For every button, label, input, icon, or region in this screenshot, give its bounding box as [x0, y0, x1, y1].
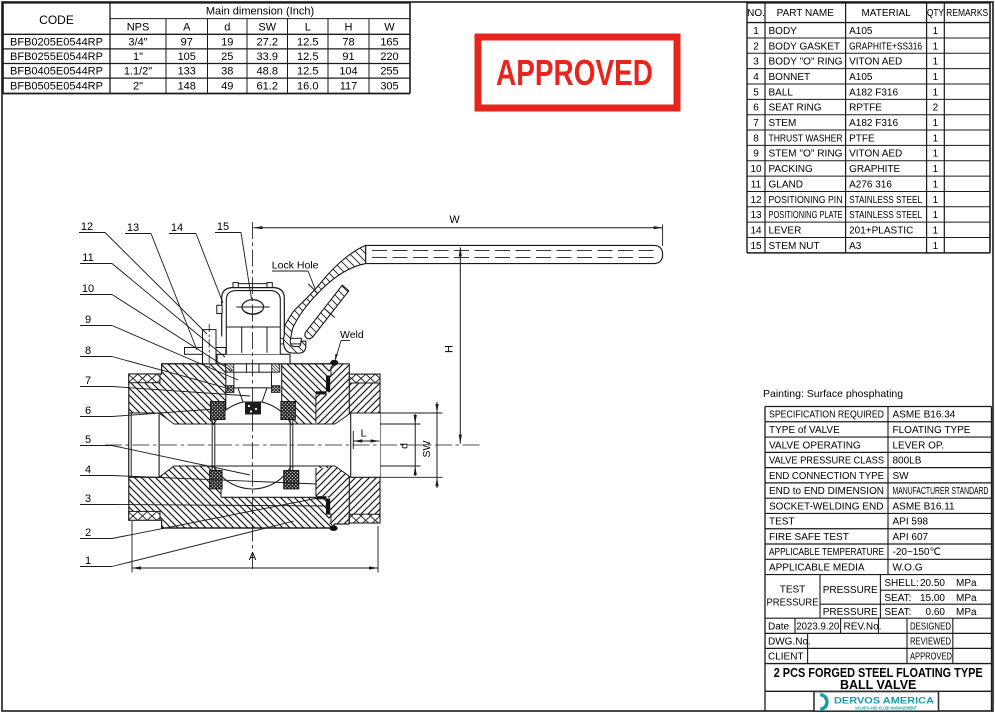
- svg-text:Lock Hole: Lock Hole: [272, 260, 319, 272]
- svg-text:BODY GASKET: BODY GASKET: [769, 41, 841, 52]
- svg-text:BFB0205E0544RP: BFB0205E0544RP: [10, 37, 103, 49]
- svg-text:3: 3: [753, 57, 759, 68]
- svg-text:12: 12: [750, 195, 762, 206]
- svg-text:GRAPHITE+SS316: GRAPHITE+SS316: [849, 41, 922, 52]
- svg-text:1: 1: [933, 225, 939, 236]
- svg-text:ASME B16.11: ASME B16.11: [893, 501, 956, 512]
- svg-text:1: 1: [933, 133, 939, 144]
- svg-text:10: 10: [82, 283, 94, 295]
- svg-text:MPa: MPa: [956, 578, 977, 589]
- svg-text:VALVE PRESSURE CLASS: VALVE PRESSURE CLASS: [769, 456, 884, 467]
- svg-text:1: 1: [753, 26, 759, 37]
- svg-text:13: 13: [750, 210, 762, 221]
- svg-text:9: 9: [753, 149, 759, 160]
- svg-text:A: A: [249, 551, 257, 563]
- svg-text:A105: A105: [849, 72, 873, 83]
- svg-text:117: 117: [340, 80, 358, 92]
- svg-text:APPROVED: APPROVED: [910, 652, 952, 663]
- svg-text:7: 7: [753, 118, 759, 129]
- svg-text:14: 14: [750, 225, 762, 236]
- svg-text:PRESSURE: PRESSURE: [767, 598, 819, 609]
- svg-text:12.5: 12.5: [297, 66, 318, 78]
- svg-text:8: 8: [753, 133, 759, 144]
- svg-text:11: 11: [82, 252, 93, 264]
- svg-text:5: 5: [85, 434, 91, 446]
- svg-text:1: 1: [933, 87, 939, 98]
- svg-text:FLOATING TYPE: FLOATING TYPE: [893, 425, 971, 436]
- svg-text:19: 19: [221, 37, 233, 49]
- svg-text:6: 6: [85, 405, 91, 417]
- svg-text:STEM NUT: STEM NUT: [769, 241, 820, 252]
- svg-text:d: d: [399, 443, 411, 449]
- svg-text:REMARKS: REMARKS: [946, 8, 988, 19]
- svg-text:PRESSURE: PRESSURE: [823, 607, 878, 618]
- svg-text:ASME B16.34: ASME B16.34: [893, 410, 956, 421]
- svg-text:14: 14: [171, 222, 183, 234]
- svg-text:78: 78: [342, 37, 354, 49]
- svg-text:3/4": 3/4": [128, 37, 147, 49]
- svg-text:VALVE OPERATING: VALVE OPERATING: [769, 440, 861, 451]
- svg-text:7: 7: [85, 375, 91, 387]
- svg-text:12: 12: [81, 221, 93, 233]
- svg-text:1: 1: [933, 149, 939, 160]
- svg-text:1: 1: [933, 26, 939, 37]
- svg-text:20.50: 20.50: [920, 578, 945, 589]
- svg-text:TYPE of VALVE: TYPE of VALVE: [769, 425, 840, 436]
- svg-text:1: 1: [933, 210, 939, 221]
- svg-text:REV.No.: REV.No.: [844, 621, 882, 632]
- svg-text:2: 2: [933, 103, 939, 114]
- svg-text:PACKING: PACKING: [769, 164, 813, 175]
- svg-text:W.O.G: W.O.G: [893, 563, 923, 574]
- svg-text:H: H: [444, 345, 456, 353]
- svg-text:2023.9.20: 2023.9.20: [796, 621, 839, 632]
- svg-text:A182 F316: A182 F316: [849, 87, 898, 98]
- svg-text:API 607: API 607: [893, 532, 929, 543]
- svg-text:27.2: 27.2: [257, 37, 278, 49]
- svg-text:GRAPHITE: GRAPHITE: [849, 164, 900, 175]
- svg-text:BONNET: BONNET: [769, 72, 811, 83]
- svg-text:PRESSURE: PRESSURE: [823, 585, 878, 596]
- svg-text:VALVES AND FLUID MANAGEMENT: VALVES AND FLUID MANAGEMENT: [855, 705, 917, 710]
- svg-text:API 598: API 598: [893, 517, 929, 528]
- svg-text:1.1/2": 1.1/2": [124, 66, 152, 78]
- svg-text:POSITIONING PLATE: POSITIONING PLATE: [769, 210, 843, 221]
- svg-text:PART NAME: PART NAME: [777, 8, 835, 19]
- svg-text:SEAT:: SEAT:: [884, 607, 911, 618]
- svg-text:d: d: [224, 22, 230, 34]
- svg-text:5: 5: [753, 87, 759, 98]
- svg-text:CODE: CODE: [39, 13, 74, 27]
- svg-text:-20~150℃: -20~150℃: [893, 547, 941, 558]
- svg-text:1: 1: [933, 241, 939, 252]
- svg-text:16.0: 16.0: [297, 80, 318, 92]
- svg-text:12.5: 12.5: [297, 51, 318, 63]
- svg-text:END to END DIMENSION: END to END DIMENSION: [769, 486, 884, 497]
- svg-text:105: 105: [178, 51, 196, 63]
- svg-text:SPECIFICATION REQUIRED: SPECIFICATION REQUIRED: [769, 410, 884, 421]
- svg-text:NO.: NO.: [747, 8, 765, 19]
- svg-text:MPa: MPa: [956, 607, 977, 618]
- svg-text:97: 97: [181, 37, 193, 49]
- svg-text:4: 4: [753, 72, 759, 83]
- svg-text:Date: Date: [768, 621, 790, 632]
- svg-text:L: L: [305, 22, 311, 34]
- svg-text:SOCKET-WELDING END: SOCKET-WELDING END: [769, 501, 883, 512]
- svg-text:BFB0405E0544RP: BFB0405E0544RP: [10, 66, 103, 78]
- svg-text:DESIGNED: DESIGNED: [910, 621, 951, 632]
- svg-text:1": 1": [133, 51, 143, 63]
- svg-text:1: 1: [933, 164, 939, 175]
- svg-text:SW: SW: [893, 471, 910, 482]
- svg-text:1: 1: [933, 41, 939, 52]
- svg-text:CLIENT: CLIENT: [768, 652, 804, 663]
- svg-text:11: 11: [751, 179, 762, 190]
- svg-text:H: H: [345, 22, 353, 34]
- svg-text:TEST: TEST: [780, 585, 806, 596]
- svg-text:38: 38: [221, 66, 233, 78]
- svg-text:PTFE: PTFE: [849, 133, 875, 144]
- svg-text:BFB0255E0544RP: BFB0255E0544RP: [10, 51, 103, 63]
- svg-text:A: A: [183, 22, 191, 34]
- svg-text:201+PLASTIC: 201+PLASTIC: [849, 225, 913, 236]
- svg-text:VITON AED: VITON AED: [849, 149, 902, 160]
- svg-text:W: W: [449, 214, 460, 226]
- svg-text:2: 2: [85, 527, 91, 539]
- svg-text:1: 1: [85, 555, 91, 567]
- svg-text:QTY: QTY: [927, 8, 944, 19]
- svg-text:LEVER: LEVER: [769, 225, 802, 236]
- svg-text:DWG.No.: DWG.No.: [768, 637, 811, 648]
- svg-text:TEST: TEST: [769, 517, 795, 528]
- svg-text:1: 1: [933, 72, 939, 83]
- svg-text:A182 F316: A182 F316: [849, 118, 898, 129]
- svg-text:GLAND: GLAND: [769, 179, 803, 190]
- svg-text:255: 255: [380, 66, 398, 78]
- svg-text:BODY "O" RING: BODY "O" RING: [769, 57, 843, 68]
- svg-text:LEVER OP.: LEVER OP.: [893, 440, 945, 451]
- svg-text:220: 220: [380, 51, 398, 63]
- svg-text:15: 15: [217, 221, 229, 233]
- svg-text:10: 10: [750, 164, 762, 175]
- svg-text:SEAT RING: SEAT RING: [769, 103, 822, 114]
- svg-text:4: 4: [85, 464, 91, 476]
- svg-text:13: 13: [127, 222, 139, 234]
- svg-text:A105: A105: [849, 26, 873, 37]
- svg-text:9: 9: [85, 314, 91, 326]
- svg-text:POSITIONING PIN: POSITIONING PIN: [769, 195, 843, 206]
- svg-text:1: 1: [933, 179, 939, 190]
- svg-text:6: 6: [753, 103, 759, 114]
- svg-text:SW: SW: [258, 22, 276, 34]
- svg-text:L: L: [361, 428, 367, 440]
- svg-text:MPa: MPa: [956, 593, 977, 604]
- svg-text:25: 25: [221, 51, 233, 63]
- svg-text:2: 2: [753, 41, 759, 52]
- svg-text:VITON AED: VITON AED: [849, 57, 902, 68]
- svg-text:Main dimension (Inch): Main dimension (Inch): [206, 6, 314, 18]
- svg-text:APPLICABLE MEDIA: APPLICABLE MEDIA: [769, 563, 865, 574]
- svg-text:STAINLESS STEEL: STAINLESS STEEL: [849, 210, 922, 221]
- svg-text:0.60: 0.60: [926, 607, 946, 618]
- svg-text:91: 91: [342, 51, 354, 63]
- svg-text:305: 305: [380, 80, 398, 92]
- svg-text:REVIEWED: REVIEWED: [910, 637, 951, 648]
- svg-text:Weld: Weld: [340, 329, 364, 341]
- svg-text:15: 15: [750, 241, 762, 252]
- svg-text:RPTFE: RPTFE: [849, 103, 882, 114]
- svg-text:15.00: 15.00: [920, 593, 945, 604]
- svg-text:SW: SW: [421, 440, 433, 457]
- svg-text:800LB: 800LB: [893, 456, 922, 467]
- svg-text:2": 2": [133, 80, 143, 92]
- svg-text:SHELL:: SHELL:: [884, 578, 918, 589]
- svg-text:STAINLESS STEEL: STAINLESS STEEL: [849, 195, 922, 206]
- svg-text:133: 133: [178, 66, 196, 78]
- svg-text:Painting: Surface phosphating: Painting: Surface phosphating: [763, 388, 903, 400]
- svg-text:BODY: BODY: [769, 26, 798, 37]
- svg-text:33.9: 33.9: [257, 51, 278, 63]
- svg-text:3: 3: [85, 493, 91, 505]
- svg-text:A3: A3: [849, 241, 862, 252]
- svg-text:12.5: 12.5: [297, 37, 318, 49]
- svg-text:APPROVED: APPROVED: [496, 52, 653, 93]
- svg-text:FIRE SAFE TEST: FIRE SAFE TEST: [769, 532, 849, 543]
- svg-text:1: 1: [933, 195, 939, 206]
- svg-text:THRUST WASHER: THRUST WASHER: [769, 133, 843, 144]
- svg-text:BALL VALVE: BALL VALVE: [840, 678, 916, 692]
- svg-text:STEM "O" RING: STEM "O" RING: [769, 149, 843, 160]
- svg-text:A276 316: A276 316: [849, 179, 892, 190]
- svg-text:49: 49: [221, 80, 233, 92]
- svg-text:BALL: BALL: [769, 87, 794, 98]
- svg-text:NPS: NPS: [127, 22, 150, 34]
- svg-text:61.2: 61.2: [257, 80, 278, 92]
- svg-text:148: 148: [178, 80, 196, 92]
- svg-text:1: 1: [933, 57, 939, 68]
- svg-text:SEAT:: SEAT:: [884, 593, 911, 604]
- svg-text:165: 165: [380, 37, 398, 49]
- svg-text:END CONNECTION TYPE: END CONNECTION TYPE: [769, 471, 884, 482]
- svg-text:APPLICABLE TEMPERATURE: APPLICABLE TEMPERATURE: [769, 547, 884, 558]
- svg-text:MANUFACTURER STANDARD: MANUFACTURER STANDARD: [893, 486, 989, 497]
- svg-text:104: 104: [339, 66, 357, 78]
- svg-text:BFB0505E0544RP: BFB0505E0544RP: [10, 80, 103, 92]
- svg-text:48.8: 48.8: [257, 66, 278, 78]
- svg-text:MATERIAL: MATERIAL: [861, 8, 911, 19]
- svg-text:1: 1: [933, 118, 939, 129]
- svg-text:W: W: [384, 22, 395, 34]
- svg-text:STEM: STEM: [769, 118, 797, 129]
- svg-text:8: 8: [85, 345, 91, 357]
